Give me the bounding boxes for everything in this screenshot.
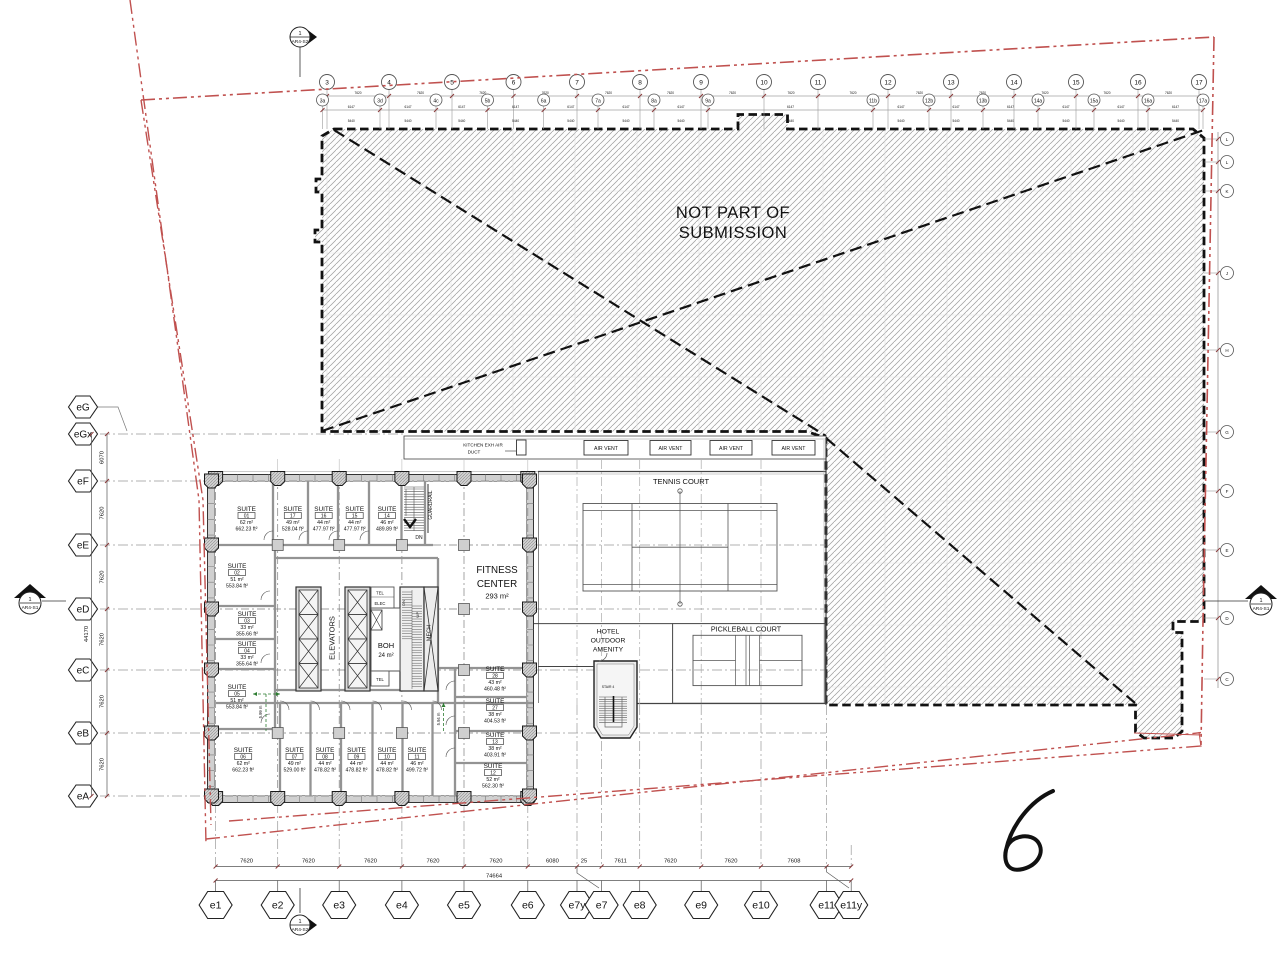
- svg-text:49 m²: 49 m²: [288, 761, 302, 767]
- svg-text:6147: 6147: [567, 105, 574, 109]
- svg-text:DN: DN: [415, 535, 423, 541]
- svg-text:478.82 ft²: 478.82 ft²: [314, 768, 336, 774]
- svg-text:44170: 44170: [84, 626, 90, 642]
- svg-text:7620: 7620: [787, 91, 794, 95]
- svg-text:44 m²: 44 m²: [318, 761, 332, 767]
- svg-text:528.04 ft²: 528.04 ft²: [282, 527, 304, 533]
- svg-text:J: J: [1226, 271, 1228, 276]
- svg-text:DN: DN: [401, 600, 406, 606]
- svg-text:07: 07: [292, 754, 298, 760]
- svg-text:SUITE: SUITE: [228, 563, 247, 570]
- svg-text:14: 14: [384, 513, 390, 519]
- svg-text:PICKLEBALL COURT: PICKLEBALL COURT: [711, 625, 782, 634]
- svg-text:553.84 ft²: 553.84 ft²: [226, 705, 248, 711]
- svg-text:02: 02: [234, 570, 240, 576]
- svg-text:6147: 6147: [677, 105, 684, 109]
- svg-text:eD: eD: [77, 604, 90, 615]
- svg-text:5440: 5440: [677, 119, 684, 123]
- svg-text:SUBMISSION: SUBMISSION: [679, 224, 788, 242]
- svg-text:6147: 6147: [458, 105, 465, 109]
- svg-text:4c: 4c: [433, 98, 439, 104]
- svg-text:AMENITY: AMENITY: [593, 647, 624, 654]
- svg-text:06: 06: [240, 754, 246, 760]
- svg-text:24 m²: 24 m²: [378, 653, 393, 659]
- svg-text:7620: 7620: [725, 859, 738, 865]
- svg-text:e6: e6: [522, 900, 534, 912]
- svg-text:5440: 5440: [1117, 119, 1124, 123]
- svg-text:eA: eA: [77, 791, 90, 802]
- svg-text:49 m²: 49 m²: [286, 520, 300, 526]
- svg-text:43 m²: 43 m²: [488, 680, 502, 686]
- svg-text:HOTEL: HOTEL: [597, 629, 620, 636]
- svg-text:5440: 5440: [1172, 119, 1179, 123]
- svg-text:13: 13: [947, 80, 955, 87]
- svg-text:62 m²: 62 m²: [237, 761, 251, 767]
- svg-text:5440: 5440: [1007, 119, 1014, 123]
- svg-text:6147: 6147: [787, 105, 794, 109]
- svg-text:e4: e4: [396, 900, 408, 912]
- svg-text:7620: 7620: [354, 91, 361, 95]
- svg-text:6147: 6147: [1117, 105, 1124, 109]
- svg-text:27: 27: [492, 705, 498, 711]
- svg-text:5440: 5440: [348, 119, 355, 123]
- svg-text:AR4-S2: AR4-S2: [292, 39, 309, 45]
- svg-text:17: 17: [1195, 80, 1203, 87]
- svg-text:13b: 13b: [979, 98, 988, 104]
- svg-text:1: 1: [298, 31, 301, 37]
- svg-text:553.84 ft²: 553.84 ft²: [226, 584, 248, 590]
- svg-text:eE: eE: [77, 540, 90, 551]
- svg-text:e3: e3: [333, 900, 345, 912]
- svg-text:6147: 6147: [512, 105, 519, 109]
- svg-text:G: G: [1225, 430, 1229, 435]
- svg-text:11b: 11b: [869, 98, 877, 104]
- svg-text:GUARDRAIL: GUARDRAIL: [428, 490, 434, 519]
- svg-text:12: 12: [490, 770, 496, 776]
- svg-text:38 m²: 38 m²: [488, 746, 502, 752]
- svg-text:SUITE: SUITE: [238, 641, 257, 648]
- svg-text:15: 15: [1072, 80, 1080, 87]
- svg-text:6: 6: [512, 80, 516, 87]
- svg-text:17a: 17a: [1199, 98, 1208, 104]
- svg-text:74664: 74664: [486, 874, 503, 880]
- svg-text:8a: 8a: [651, 98, 657, 104]
- svg-text:08: 08: [322, 754, 328, 760]
- svg-text:6147: 6147: [622, 105, 629, 109]
- svg-text:AIR VENT: AIR VENT: [719, 446, 744, 452]
- svg-text:H: H: [1225, 348, 1228, 353]
- svg-text:e7y: e7y: [569, 900, 587, 912]
- svg-text:1: 1: [298, 919, 301, 925]
- svg-text:K: K: [1225, 189, 1228, 194]
- svg-text:6147: 6147: [1172, 105, 1179, 109]
- svg-text:13: 13: [492, 739, 498, 745]
- svg-text:7a: 7a: [595, 98, 601, 104]
- svg-text:8: 8: [638, 80, 642, 87]
- svg-text:5: 5: [450, 80, 454, 87]
- svg-text:5.94 m: 5.94 m: [436, 712, 441, 725]
- svg-text:6147: 6147: [348, 105, 355, 109]
- svg-text:e1: e1: [210, 900, 222, 912]
- svg-text:7620: 7620: [1103, 91, 1110, 95]
- svg-text:3: 3: [325, 80, 329, 87]
- svg-text:7620: 7620: [490, 859, 503, 865]
- svg-text:7620: 7620: [667, 91, 674, 95]
- svg-text:e5: e5: [458, 900, 470, 912]
- svg-text:44 m²: 44 m²: [317, 520, 331, 526]
- svg-text:293 m²: 293 m²: [485, 592, 509, 601]
- svg-text:7620: 7620: [302, 859, 315, 865]
- svg-text:25: 25: [581, 859, 587, 865]
- svg-text:477.97 ft²: 477.97 ft²: [313, 527, 335, 533]
- svg-text:12: 12: [884, 80, 892, 87]
- svg-text:7620: 7620: [100, 507, 106, 520]
- svg-text:SUITE: SUITE: [378, 506, 397, 513]
- svg-text:eF: eF: [77, 476, 89, 487]
- svg-text:CENTER: CENTER: [477, 579, 517, 590]
- svg-text:6147: 6147: [897, 105, 904, 109]
- svg-text:AR4-S2: AR4-S2: [292, 927, 309, 933]
- svg-text:403.91 ft²: 403.91 ft²: [484, 753, 506, 759]
- svg-text:SUITE: SUITE: [314, 506, 333, 513]
- svg-text:9a: 9a: [705, 98, 711, 104]
- svg-text:14a: 14a: [1034, 98, 1043, 104]
- svg-text:BOH: BOH: [378, 641, 394, 650]
- svg-text:5b: 5b: [485, 98, 491, 104]
- svg-text:7620: 7620: [100, 695, 106, 708]
- svg-text:MECH: MECH: [427, 625, 433, 641]
- svg-text:44 m²: 44 m²: [380, 761, 394, 767]
- svg-text:7608: 7608: [788, 859, 801, 865]
- svg-text:6070: 6070: [100, 451, 106, 464]
- svg-text:489.89 ft²: 489.89 ft²: [376, 527, 398, 533]
- svg-text:3a: 3a: [320, 98, 326, 104]
- svg-text:15a: 15a: [1090, 98, 1099, 104]
- svg-text:5440: 5440: [897, 119, 904, 123]
- svg-text:11: 11: [414, 754, 419, 760]
- svg-text:SUITE: SUITE: [378, 747, 397, 754]
- svg-text:7: 7: [575, 80, 579, 87]
- svg-text:51 m²: 51 m²: [230, 698, 244, 704]
- svg-text:44 m²: 44 m²: [350, 761, 364, 767]
- svg-text:404.53 ft²: 404.53 ft²: [484, 719, 506, 725]
- svg-text:355.66 ft²: 355.66 ft²: [236, 632, 258, 638]
- svg-text:10: 10: [384, 754, 390, 760]
- svg-text:e11y: e11y: [840, 900, 863, 912]
- svg-text:e8: e8: [634, 900, 646, 912]
- svg-text:46 m²: 46 m²: [410, 761, 424, 767]
- svg-text:AIR VENT: AIR VENT: [782, 446, 807, 452]
- svg-text:09: 09: [354, 754, 360, 760]
- svg-text:TEL: TEL: [376, 677, 384, 682]
- svg-text:03: 03: [244, 618, 250, 624]
- svg-text:7620: 7620: [1041, 91, 1048, 95]
- svg-text:7620: 7620: [427, 859, 440, 865]
- svg-text:SUITE: SUITE: [345, 506, 364, 513]
- svg-text:52 m²: 52 m²: [486, 777, 500, 783]
- svg-text:46 m²: 46 m²: [380, 520, 394, 526]
- svg-text:7620: 7620: [240, 859, 253, 865]
- svg-text:e11: e11: [818, 900, 835, 912]
- svg-text:5.99 m: 5.99 m: [258, 705, 263, 718]
- svg-text:E: E: [1225, 548, 1228, 553]
- svg-text:11: 11: [815, 80, 822, 87]
- svg-text:38 m²: 38 m²: [488, 712, 502, 718]
- svg-text:ELEVATORS: ELEVATORS: [328, 616, 337, 660]
- svg-text:04: 04: [244, 648, 250, 654]
- svg-text:6147: 6147: [404, 105, 411, 109]
- svg-text:15: 15: [352, 513, 358, 519]
- svg-text:5440: 5440: [1062, 119, 1069, 123]
- svg-text:e9: e9: [695, 900, 707, 912]
- svg-text:SUITE: SUITE: [237, 506, 256, 513]
- svg-text:SUITE: SUITE: [285, 747, 304, 754]
- svg-text:OUTDOOR: OUTDOOR: [591, 638, 626, 645]
- svg-text:e7: e7: [596, 900, 608, 912]
- svg-text:6080: 6080: [546, 859, 559, 865]
- svg-text:AIR VENT: AIR VENT: [594, 446, 619, 452]
- svg-text:33 m²: 33 m²: [240, 655, 254, 661]
- svg-text:SUITE: SUITE: [486, 698, 505, 705]
- svg-text:562.30 ft²: 562.30 ft²: [482, 784, 504, 790]
- svg-text:5440: 5440: [567, 119, 574, 123]
- svg-text:7620: 7620: [916, 91, 923, 95]
- svg-text:478.82 ft²: 478.82 ft²: [346, 768, 368, 774]
- svg-text:AR4-S1: AR4-S1: [1253, 606, 1270, 612]
- svg-text:UP: UP: [415, 612, 420, 618]
- svg-text:ELEC: ELEC: [375, 601, 386, 606]
- svg-text:05: 05: [234, 691, 240, 697]
- svg-text:7620: 7620: [1165, 91, 1172, 95]
- svg-text:eGx: eGx: [74, 429, 92, 440]
- svg-text:5440: 5440: [622, 119, 629, 123]
- svg-text:477.97 ft²: 477.97 ft²: [344, 527, 366, 533]
- svg-text:7620: 7620: [729, 91, 736, 95]
- svg-text:SUITE: SUITE: [238, 611, 257, 618]
- svg-text:6147: 6147: [1007, 105, 1014, 109]
- svg-text:3d: 3d: [377, 98, 383, 104]
- svg-text:1: 1: [28, 597, 31, 603]
- svg-text:44 m²: 44 m²: [348, 520, 362, 526]
- svg-text:33 m²: 33 m²: [240, 625, 254, 631]
- svg-text:7620: 7620: [417, 91, 424, 95]
- svg-text:DUCT: DUCT: [468, 450, 481, 455]
- svg-text:16a: 16a: [1144, 98, 1153, 104]
- svg-text:9: 9: [699, 80, 703, 87]
- svg-text:10: 10: [760, 80, 768, 87]
- svg-text:12b: 12b: [925, 98, 934, 104]
- svg-text:7611: 7611: [614, 859, 626, 865]
- svg-text:499.72 ft²: 499.72 ft²: [406, 768, 428, 774]
- svg-text:SUITE: SUITE: [486, 732, 505, 739]
- svg-text:5440: 5440: [952, 119, 959, 123]
- svg-text:14: 14: [1010, 80, 1018, 87]
- svg-text:eB: eB: [77, 728, 90, 739]
- svg-text:SUITE: SUITE: [316, 747, 335, 754]
- svg-text:eC: eC: [77, 665, 90, 676]
- svg-text:662.23 ft²: 662.23 ft²: [236, 527, 258, 533]
- svg-text:51 m²: 51 m²: [230, 577, 244, 583]
- svg-text:eG: eG: [76, 402, 90, 413]
- svg-text:SUITE: SUITE: [234, 747, 253, 754]
- svg-text:SUITE: SUITE: [347, 747, 366, 754]
- svg-text:5440: 5440: [787, 119, 794, 123]
- svg-text:16: 16: [1134, 80, 1142, 87]
- svg-text:28: 28: [492, 673, 498, 679]
- svg-text:7620: 7620: [100, 758, 106, 771]
- svg-text:529.00 ft²: 529.00 ft²: [284, 768, 306, 774]
- svg-text:SUITE: SUITE: [408, 747, 427, 754]
- svg-text:SUITE: SUITE: [228, 684, 247, 691]
- svg-text:FITNESS: FITNESS: [476, 565, 518, 576]
- svg-text:7620: 7620: [605, 91, 612, 95]
- svg-text:6a: 6a: [541, 98, 547, 104]
- svg-text:SUITE: SUITE: [484, 763, 503, 770]
- svg-text:AIR VENT: AIR VENT: [659, 446, 684, 452]
- svg-text:7620: 7620: [100, 633, 106, 646]
- svg-text:SUITE: SUITE: [283, 506, 302, 513]
- svg-text:5440: 5440: [512, 119, 519, 123]
- svg-text:STAIR 4: STAIR 4: [602, 685, 615, 689]
- svg-text:5440: 5440: [404, 119, 411, 123]
- svg-text:NOT PART OF: NOT PART OF: [676, 204, 790, 222]
- svg-text:6147: 6147: [1062, 105, 1069, 109]
- svg-text:e10: e10: [752, 900, 770, 912]
- svg-text:7620: 7620: [664, 859, 677, 865]
- svg-text:7620: 7620: [849, 91, 856, 95]
- svg-text:478.82 ft²: 478.82 ft²: [376, 768, 398, 774]
- svg-text:460.48 ft²: 460.48 ft²: [484, 687, 506, 693]
- svg-text:e2: e2: [272, 900, 284, 912]
- svg-text:AR4-S1: AR4-S1: [22, 605, 39, 611]
- svg-text:TENNIS COURT: TENNIS COURT: [653, 477, 710, 486]
- svg-text:1: 1: [1259, 598, 1262, 604]
- svg-text:5440: 5440: [458, 119, 465, 123]
- svg-text:F: F: [1226, 489, 1229, 494]
- svg-text:7620: 7620: [100, 571, 106, 584]
- svg-text:62 m²: 62 m²: [240, 520, 254, 526]
- svg-text:7620: 7620: [364, 859, 377, 865]
- svg-text:01: 01: [244, 513, 250, 519]
- svg-text:6147: 6147: [952, 105, 959, 109]
- svg-text:KITCHEN EXH AIR: KITCHEN EXH AIR: [463, 443, 503, 448]
- svg-text:662.23 ft²: 662.23 ft²: [232, 768, 254, 774]
- svg-text:355.64 ft²: 355.64 ft²: [236, 662, 258, 668]
- svg-text:SUITE: SUITE: [486, 666, 505, 673]
- svg-text:16: 16: [321, 513, 327, 519]
- svg-text:17: 17: [290, 513, 296, 519]
- svg-text:TEL: TEL: [376, 591, 384, 596]
